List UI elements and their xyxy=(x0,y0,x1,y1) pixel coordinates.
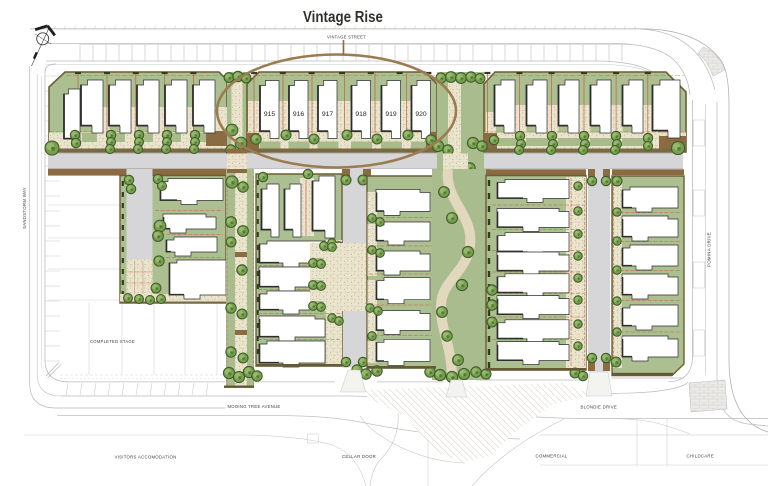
svg-text:COMPLETED STAGE: COMPLETED STAGE xyxy=(90,339,135,344)
svg-text:VISITORS ACCOMODATION: VISITORS ACCOMODATION xyxy=(115,455,177,460)
svg-text:VINTAGE STREET: VINTAGE STREET xyxy=(327,35,366,40)
svg-text:COMMERCIAL: COMMERCIAL xyxy=(536,454,568,459)
svg-text:POMINA DRIVE: POMINA DRIVE xyxy=(707,232,712,267)
svg-text:919: 919 xyxy=(385,111,397,118)
svg-text:BLONDIE DRIVE: BLONDIE DRIVE xyxy=(581,405,618,410)
svg-text:917: 917 xyxy=(322,111,334,118)
svg-text:920: 920 xyxy=(415,111,427,118)
svg-text:MOOING TREE AVENUE: MOOING TREE AVENUE xyxy=(228,404,281,409)
svg-text:916: 916 xyxy=(293,111,305,118)
svg-text:CHILDCARE: CHILDCARE xyxy=(687,454,715,459)
svg-text:SANDSTORM WAY: SANDSTORM WAY xyxy=(22,187,27,229)
svg-text:918: 918 xyxy=(355,111,367,118)
svg-text:CELLAR DOOR: CELLAR DOOR xyxy=(342,454,376,459)
svg-text:Vintage Rise: Vintage Rise xyxy=(303,9,383,26)
svg-text:915: 915 xyxy=(264,111,276,118)
